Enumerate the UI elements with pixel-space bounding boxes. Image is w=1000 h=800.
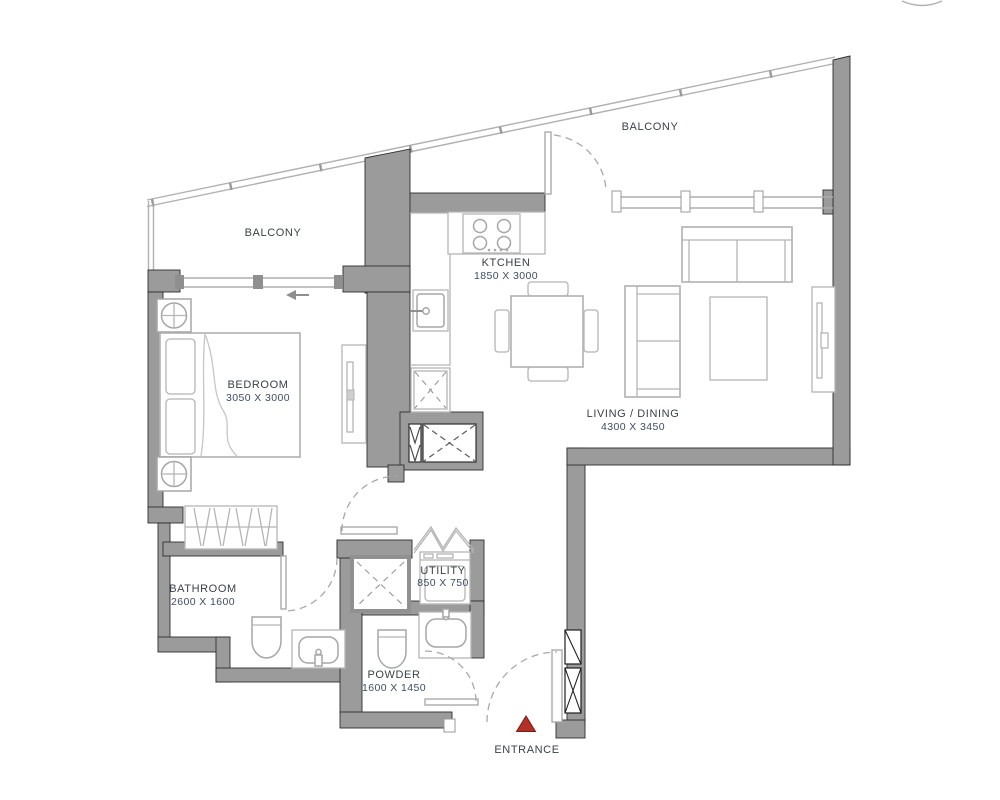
entrance-marker-icon <box>517 716 536 732</box>
electrical-panel-icon <box>565 668 581 713</box>
balcony-left-label: BALCONY <box>245 227 302 239</box>
powder-label: POWDER <box>367 669 420 681</box>
balcony-door <box>545 132 606 194</box>
entrance-label: ENTRANCE <box>494 744 559 756</box>
dishwasher-icon <box>411 368 450 412</box>
dining-table-icon <box>495 282 598 381</box>
kitchen-dims: 1850 X 3000 <box>474 270 538 282</box>
bathroom-sink-icon <box>292 630 345 668</box>
nightstand-icon <box>157 457 191 491</box>
bedroom-label: BEDROOM <box>227 379 288 391</box>
living-window-rail <box>612 191 833 212</box>
bathroom-door <box>281 556 337 611</box>
balcony-rail-left <box>149 201 154 271</box>
bedroom-window <box>175 275 343 289</box>
entrance-door <box>444 650 562 732</box>
electrical-panel-icon <box>565 630 581 664</box>
toilet-icon <box>252 617 281 658</box>
living-dining-label: LIVING / DINING <box>587 408 680 420</box>
floorplan-page: BALCONY BALCONY KTCHEN 1850 X 3000 BEDRO… <box>0 0 1000 800</box>
balcony-rail-diagonal <box>147 57 835 207</box>
toilet-icon <box>378 630 406 668</box>
duct-shafts <box>409 424 476 462</box>
powder-door <box>425 651 478 705</box>
utility-dims: 850 X 750 <box>417 577 468 589</box>
wardrobe-icon <box>342 345 366 443</box>
coffee-table-icon <box>710 297 767 380</box>
shower-icon <box>352 557 409 611</box>
nightstand-icon <box>157 299 191 332</box>
bathroom-dims: 2600 X 1600 <box>171 596 235 608</box>
closet-icon <box>185 506 277 549</box>
floorplan-svg: BALCONY BALCONY KTCHEN 1850 X 3000 BEDRO… <box>0 0 1000 800</box>
living-dining-dims: 4300 X 3450 <box>601 421 665 433</box>
powder-dims: 1600 X 1450 <box>362 682 426 694</box>
cropped-callout-circle <box>902 1 942 6</box>
balcony-top-label: BALCONY <box>622 121 679 133</box>
tv-unit-icon <box>812 287 835 392</box>
kitchen-sink-icon <box>410 290 448 331</box>
bedroom-dims: 3050 X 3000 <box>226 392 290 404</box>
window-arrow-icon <box>286 290 309 300</box>
bathroom-label: BATHROOM <box>169 583 237 595</box>
sofa-icon <box>625 286 680 397</box>
stove-icon <box>463 214 520 253</box>
kitchen-label: KTCHEN <box>482 257 531 269</box>
utility-label: UTILITY <box>420 565 465 577</box>
bedroom-door <box>341 476 397 534</box>
sofa-icon <box>682 227 792 282</box>
bifold-door-icon <box>414 527 474 553</box>
